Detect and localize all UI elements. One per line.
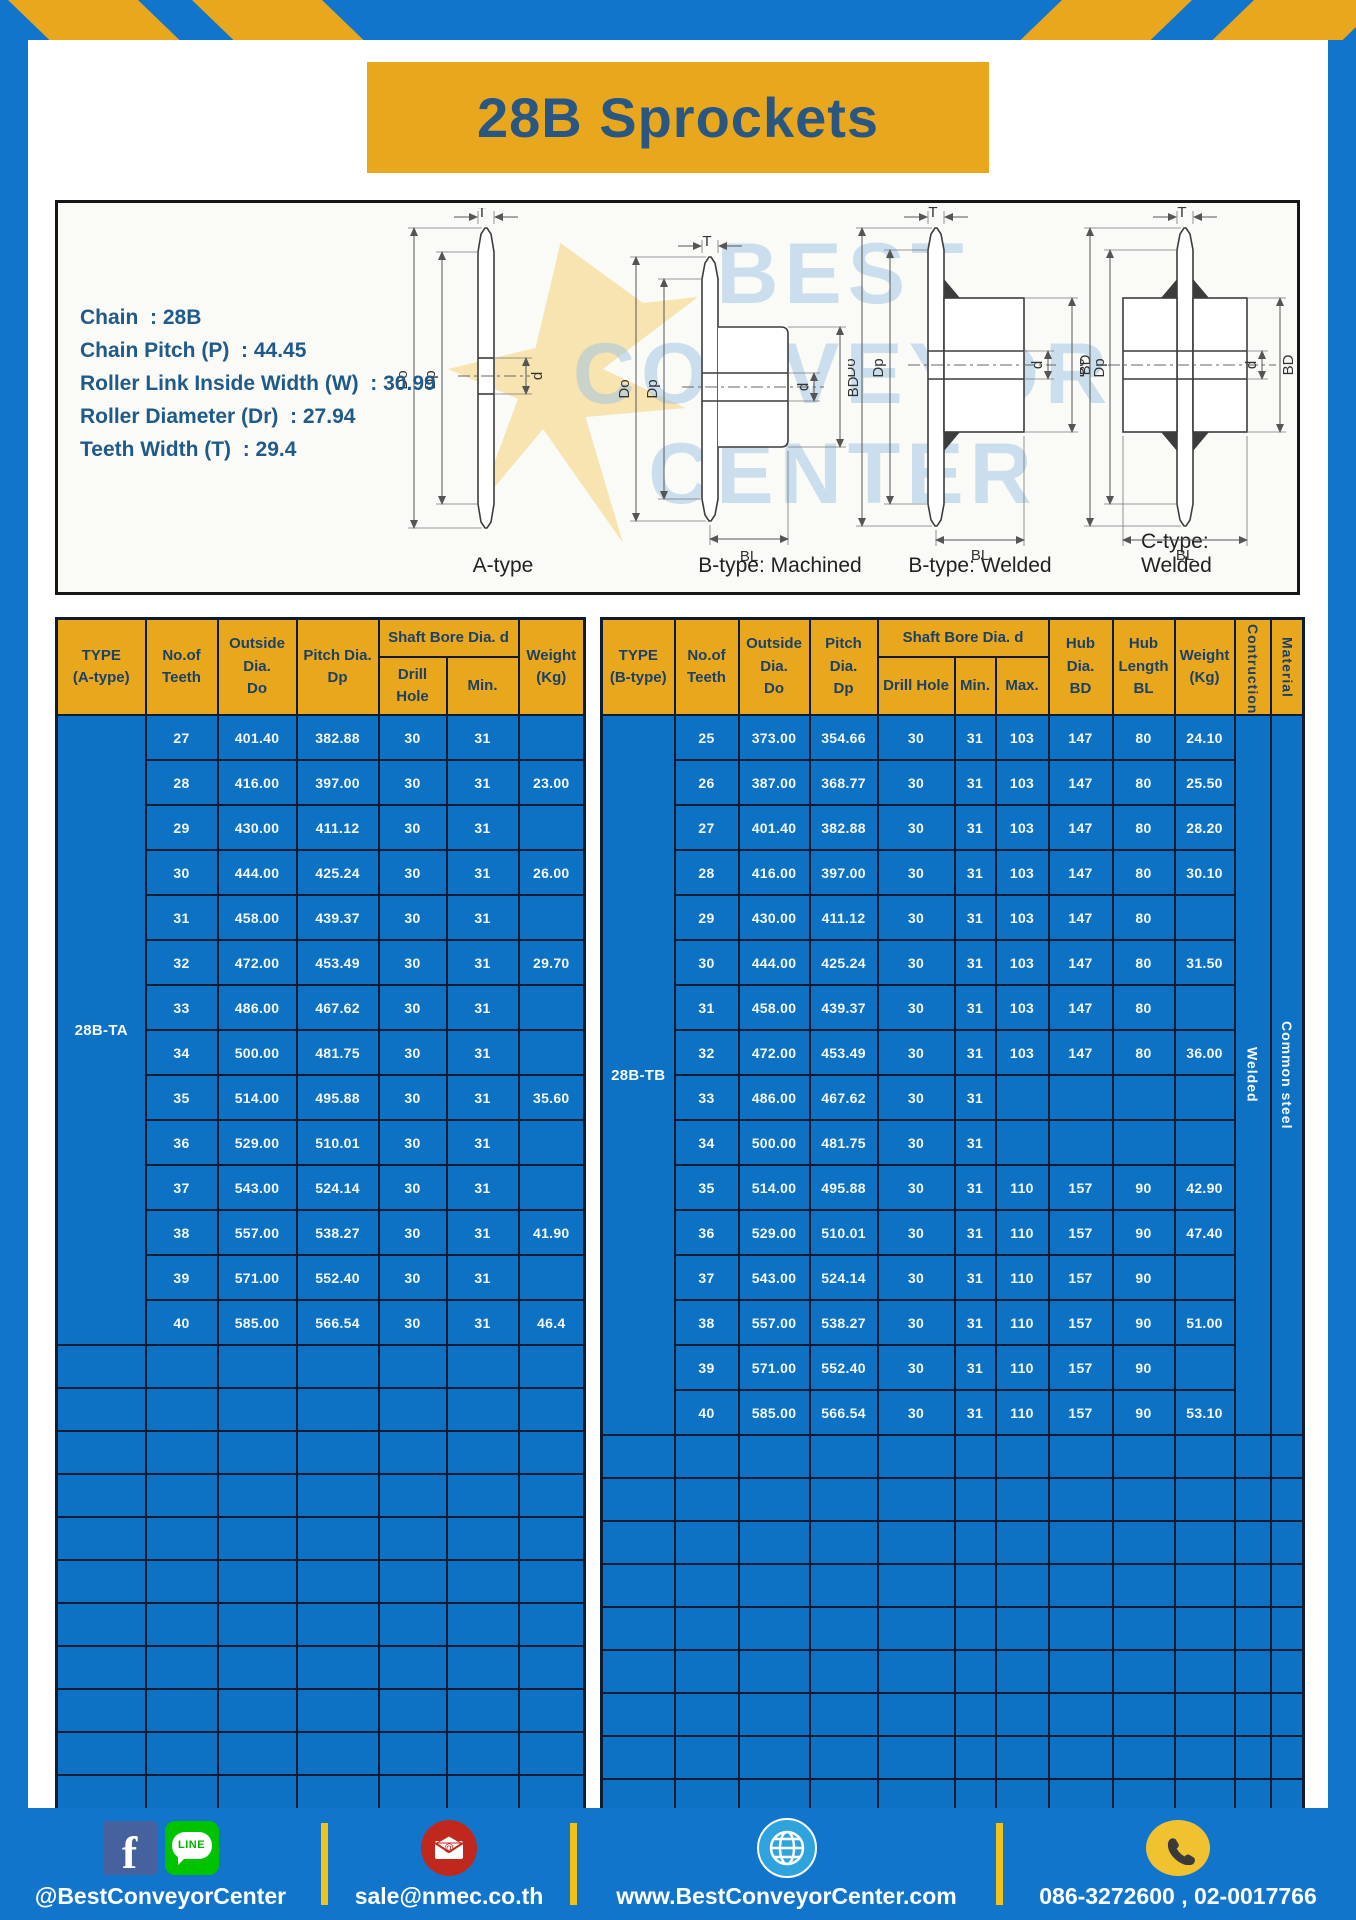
data-cell: 40 (146, 1300, 218, 1345)
col-header-min: Min. (955, 657, 996, 715)
dim-label-d: d (795, 383, 812, 391)
data-cell: 147 (1049, 985, 1113, 1030)
data-cell: 110 (996, 1210, 1049, 1255)
data-cell: 157 (1049, 1165, 1113, 1210)
data-cell (1113, 1120, 1175, 1165)
empty-cell (996, 1736, 1049, 1779)
data-cell: 31 (447, 940, 519, 985)
data-cell: 524.14 (297, 1165, 379, 1210)
table-row: 35514.00495.8830311101579042.90 (602, 1165, 1304, 1210)
data-cell: 28.20 (1175, 805, 1235, 850)
col-header-outside-dia: Outside Dia. Do (218, 619, 297, 716)
phone-icon (1146, 1820, 1210, 1876)
empty-cell (1271, 1564, 1304, 1607)
data-cell: 51.00 (1175, 1300, 1235, 1345)
empty-cell (955, 1736, 996, 1779)
data-cell: 157 (1049, 1255, 1113, 1300)
dim-label-do: Do (848, 358, 859, 377)
empty-cell (878, 1736, 955, 1779)
data-cell: 90 (1113, 1390, 1175, 1435)
data-cell: 411.12 (297, 805, 379, 850)
data-cell: 31 (955, 1390, 996, 1435)
empty-row (602, 1564, 1304, 1607)
hazard-stripe (8, 0, 179, 40)
empty-cell (996, 1521, 1049, 1564)
data-cell: 35 (146, 1075, 218, 1120)
empty-cell (1235, 1736, 1271, 1779)
empty-cell (1049, 1736, 1113, 1779)
empty-cell (1235, 1435, 1271, 1478)
empty-cell (1049, 1693, 1113, 1736)
data-cell: 30 (878, 1165, 955, 1210)
empty-cell (602, 1521, 675, 1564)
empty-cell (519, 1474, 585, 1517)
empty-cell (602, 1650, 675, 1693)
data-cell: 47.40 (1175, 1210, 1235, 1255)
data-cell: 103 (996, 985, 1049, 1030)
data-cell: 500.00 (739, 1120, 810, 1165)
empty-cell (1113, 1521, 1175, 1564)
data-cell: 31 (955, 1165, 996, 1210)
hazard-stripe (1213, 0, 1356, 40)
empty-cell (57, 1560, 146, 1603)
data-cell: 26 (675, 760, 739, 805)
empty-cell (57, 1517, 146, 1560)
table-row: 27401.40382.8830311031478028.20 (602, 805, 1304, 850)
empty-cell (519, 1603, 585, 1646)
data-cell: 32 (675, 1030, 739, 1075)
empty-row (57, 1431, 585, 1474)
footer-contact-bar: f LINE @BestConveyorCenter @ sale (0, 1808, 1356, 1920)
table-header: TYPE (A-type) No.of Teeth Outside Dia. D… (57, 619, 585, 716)
empty-cell (675, 1607, 739, 1650)
table-row: 28416.00397.0030311031478030.10 (602, 850, 1304, 895)
col-header-type: TYPE (B-type) (602, 619, 675, 716)
data-cell: 387.00 (739, 760, 810, 805)
empty-cell (739, 1478, 810, 1521)
data-cell: 28 (146, 760, 218, 805)
data-cell: 514.00 (218, 1075, 297, 1120)
empty-cell (996, 1693, 1049, 1736)
footer-email-section: @ sale@nmec.co.th (328, 1819, 570, 1910)
empty-cell (810, 1478, 878, 1521)
footer-phone-section: 086-3272600 , 02-0017766 (1003, 1819, 1353, 1910)
table-row: 39571.00552.40303111015790 (602, 1345, 1304, 1390)
empty-cell (297, 1388, 379, 1431)
empty-cell (297, 1431, 379, 1474)
empty-cell (878, 1521, 955, 1564)
data-cell: 31 (955, 1210, 996, 1255)
data-cell: 397.00 (297, 760, 379, 805)
empty-cell (57, 1646, 146, 1689)
data-cell: 23.00 (519, 760, 585, 805)
dim-label-dp: Dp (870, 358, 887, 377)
data-cell (519, 805, 585, 850)
data-cell: 37 (146, 1165, 218, 1210)
table-header: TYPE (B-type) No.of Teeth Outside Dia. D… (602, 619, 1304, 716)
col-header-drill-hole: Drill Hole (878, 657, 955, 715)
data-cell: 31 (447, 1210, 519, 1255)
page-title: 28B Sprockets (477, 85, 879, 150)
data-cell: 25.50 (1175, 760, 1235, 805)
line-label: LINE (178, 1839, 205, 1851)
data-cell: 34 (675, 1120, 739, 1165)
table-row: 26387.00368.7730311031478025.50 (602, 760, 1304, 805)
empty-cell (1049, 1650, 1113, 1693)
empty-cell (675, 1435, 739, 1478)
col-header-pitch-dia: Pitch Dia. Dp (297, 619, 379, 716)
col-header-pitch-dia: Pitch Dia. Dp (810, 619, 878, 716)
data-cell: 147 (1049, 895, 1113, 940)
col-header-material: Material (1271, 619, 1304, 716)
data-cell: 36 (146, 1120, 218, 1165)
empty-cell (1175, 1736, 1235, 1779)
empty-cell (379, 1603, 447, 1646)
dim-label-do: Do (1080, 358, 1088, 377)
empty-cell (1175, 1650, 1235, 1693)
empty-cell (218, 1603, 297, 1646)
empty-cell (1175, 1564, 1235, 1607)
data-cell: 31 (955, 1255, 996, 1300)
empty-cell (447, 1431, 519, 1474)
empty-cell (519, 1345, 585, 1388)
data-cell: 529.00 (739, 1210, 810, 1255)
footer-divider (570, 1823, 577, 1905)
empty-cell (146, 1689, 218, 1732)
data-cell: 31 (447, 1165, 519, 1210)
data-cell: 147 (1049, 715, 1113, 760)
empty-cell (447, 1517, 519, 1560)
data-cell: 30 (379, 1210, 447, 1255)
data-cell: 103 (996, 850, 1049, 895)
empty-cell (379, 1474, 447, 1517)
data-cell (996, 1075, 1049, 1120)
empty-cell (955, 1564, 996, 1607)
data-cell: 27 (675, 805, 739, 850)
globe-icon (757, 1818, 817, 1878)
data-cell: 31 (447, 760, 519, 805)
data-cell: 36.00 (1175, 1030, 1235, 1075)
data-cell: 103 (996, 805, 1049, 850)
data-cell: 552.40 (297, 1255, 379, 1300)
social-handle: @BestConveyorCenter (35, 1883, 286, 1910)
empty-cell (1049, 1564, 1113, 1607)
empty-cell (379, 1689, 447, 1732)
a-type-spec-table: TYPE (A-type) No.of Teeth Outside Dia. D… (55, 617, 586, 1820)
data-cell: 80 (1113, 850, 1175, 895)
hazard-stripe (192, 0, 363, 40)
empty-cell (1235, 1650, 1271, 1693)
data-cell: 147 (1049, 760, 1113, 805)
right-table-body: 28B-TB25373.00354.6630311031478024.10Wel… (602, 715, 1304, 1823)
col-header-drill-hole: Drill Hole (379, 657, 447, 715)
data-cell: 37 (675, 1255, 739, 1300)
data-cell: 31 (955, 1300, 996, 1345)
spec-line: Chain : 28B (80, 301, 436, 334)
empty-cell (810, 1650, 878, 1693)
data-cell: 110 (996, 1165, 1049, 1210)
b-type-spec-table: TYPE (B-type) No.of Teeth Outside Dia. D… (600, 617, 1305, 1824)
empty-cell (1271, 1607, 1304, 1650)
empty-cell (996, 1435, 1049, 1478)
empty-cell (146, 1646, 218, 1689)
table-row: 31458.00439.37303110314780 (602, 985, 1304, 1030)
facebook-icon: f (103, 1821, 157, 1875)
data-cell: 425.24 (297, 850, 379, 895)
table-row: 29430.00411.12303110314780 (602, 895, 1304, 940)
empty-cell (297, 1345, 379, 1388)
data-cell: 90 (1113, 1255, 1175, 1300)
data-cell: 110 (996, 1255, 1049, 1300)
data-cell: 472.00 (218, 940, 297, 985)
c-type-welded-diagram: T Do Dp d BD BL (1080, 206, 1295, 563)
data-cell: 31 (447, 1030, 519, 1075)
data-cell: 524.14 (810, 1255, 878, 1300)
data-cell: 147 (1049, 940, 1113, 985)
empty-cell (447, 1560, 519, 1603)
empty-cell (218, 1732, 297, 1775)
spec-line: Roller Diameter (Dr) : 27.94 (80, 400, 436, 433)
data-cell: 30 (878, 1390, 955, 1435)
footer-website-section: www.BestConveyorCenter.com (577, 1819, 996, 1910)
empty-row (602, 1607, 1304, 1650)
empty-cell (878, 1607, 955, 1650)
empty-cell (602, 1607, 675, 1650)
empty-cell (1049, 1478, 1113, 1521)
empty-row (57, 1560, 585, 1603)
empty-row (602, 1650, 1304, 1693)
empty-cell (675, 1521, 739, 1564)
empty-cell (955, 1693, 996, 1736)
data-cell: 29 (146, 805, 218, 850)
hazard-stripe (1021, 0, 1192, 40)
data-cell: 401.40 (739, 805, 810, 850)
data-cell: 26.00 (519, 850, 585, 895)
empty-cell (519, 1517, 585, 1560)
empty-cell (675, 1736, 739, 1779)
data-cell: 31 (447, 1120, 519, 1165)
empty-cell (1175, 1607, 1235, 1650)
col-header-hub-length: Hub Length BL (1113, 619, 1175, 716)
empty-cell (1113, 1736, 1175, 1779)
data-cell: 30 (878, 1345, 955, 1390)
data-cell: 42.90 (1175, 1165, 1235, 1210)
data-cell (1175, 1120, 1235, 1165)
empty-cell (878, 1650, 955, 1693)
data-cell: 425.24 (810, 940, 878, 985)
data-cell: 80 (1113, 895, 1175, 940)
empty-cell (146, 1431, 218, 1474)
empty-row (602, 1435, 1304, 1478)
data-cell: 157 (1049, 1390, 1113, 1435)
data-cell: 510.01 (810, 1210, 878, 1255)
empty-row (57, 1689, 585, 1732)
data-cell: 53.10 (1175, 1390, 1235, 1435)
data-cell: 30 (379, 1255, 447, 1300)
empty-cell (878, 1435, 955, 1478)
construction-cell: Welded (1235, 715, 1271, 1435)
data-cell: 571.00 (218, 1255, 297, 1300)
dim-label-t: T (1177, 206, 1186, 221)
data-cell: 90 (1113, 1300, 1175, 1345)
empty-cell (447, 1603, 519, 1646)
empty-cell (146, 1345, 218, 1388)
data-cell: 32 (146, 940, 218, 985)
empty-row (602, 1693, 1304, 1736)
dim-label-d: d (1029, 361, 1046, 369)
data-cell: 481.75 (297, 1030, 379, 1075)
empty-cell (602, 1435, 675, 1478)
empty-cell (1271, 1736, 1304, 1779)
empty-cell (675, 1564, 739, 1607)
footer-divider (321, 1823, 328, 1905)
data-cell: 472.00 (739, 1030, 810, 1075)
paper-sheet: 28B Sprockets BEST CONVEYOR CENTER Chain… (28, 40, 1328, 1808)
data-cell: 90 (1113, 1345, 1175, 1390)
data-cell: 38 (675, 1300, 739, 1345)
data-cell: 411.12 (810, 895, 878, 940)
data-cell: 495.88 (810, 1165, 878, 1210)
data-cell: 31 (146, 895, 218, 940)
data-cell: 486.00 (218, 985, 297, 1030)
data-cell: 30 (878, 940, 955, 985)
empty-cell (739, 1650, 810, 1693)
data-cell: 486.00 (739, 1075, 810, 1120)
data-cell (1175, 1255, 1235, 1300)
empty-cell (379, 1646, 447, 1689)
data-cell: 30 (379, 1165, 447, 1210)
data-cell: 31 (955, 760, 996, 805)
type-cell: 28B-TA (57, 715, 146, 1345)
left-table-body: 28B-TA27401.40382.88303128416.00397.0030… (57, 715, 585, 1819)
data-cell: 543.00 (218, 1165, 297, 1210)
data-cell: 39 (675, 1345, 739, 1390)
data-cell: 24.10 (1175, 715, 1235, 760)
data-cell: 538.27 (297, 1210, 379, 1255)
catalog-page: 28B Sprockets BEST CONVEYOR CENTER Chain… (0, 0, 1356, 1920)
table-row: 40585.00566.5430311101579053.10 (602, 1390, 1304, 1435)
empty-cell (810, 1435, 878, 1478)
data-cell: 368.77 (810, 760, 878, 805)
table-row: 36529.00510.0130311101579047.40 (602, 1210, 1304, 1255)
empty-cell (996, 1607, 1049, 1650)
empty-cell (57, 1345, 146, 1388)
empty-cell (602, 1564, 675, 1607)
data-cell: 354.66 (810, 715, 878, 760)
data-cell: 41.90 (519, 1210, 585, 1255)
col-header-weight: Weight (Kg) (1175, 619, 1235, 716)
data-cell: 31 (955, 1030, 996, 1075)
data-cell: 157 (1049, 1210, 1113, 1255)
empty-cell (996, 1564, 1049, 1607)
table-row: 28B-TA27401.40382.883031 (57, 715, 585, 760)
empty-cell (955, 1607, 996, 1650)
data-cell: 30 (878, 715, 955, 760)
data-cell: 439.37 (297, 895, 379, 940)
empty-cell (57, 1603, 146, 1646)
data-cell: 31 (447, 985, 519, 1030)
data-cell: 552.40 (810, 1345, 878, 1390)
data-cell: 30 (878, 850, 955, 895)
empty-cell (739, 1693, 810, 1736)
data-cell: 29 (675, 895, 739, 940)
dim-label-dp: Dp (1091, 358, 1108, 377)
empty-row (57, 1603, 585, 1646)
data-cell: 31 (955, 940, 996, 985)
data-cell: 38 (146, 1210, 218, 1255)
spec-line: Chain Pitch (P) : 44.45 (80, 334, 436, 367)
empty-cell (218, 1474, 297, 1517)
data-cell: 33 (675, 1075, 739, 1120)
empty-cell (810, 1736, 878, 1779)
data-cell: 36 (675, 1210, 739, 1255)
dim-label-t: T (928, 206, 937, 221)
data-cell: 110 (996, 1390, 1049, 1435)
material-cell: Common steel (1271, 715, 1304, 1435)
empty-cell (810, 1693, 878, 1736)
data-cell (519, 895, 585, 940)
data-cell: 453.49 (297, 940, 379, 985)
data-cell: 31 (955, 805, 996, 850)
empty-cell (218, 1388, 297, 1431)
data-cell: 103 (996, 1030, 1049, 1075)
empty-cell (218, 1689, 297, 1732)
data-cell: 401.40 (218, 715, 297, 760)
empty-cell (1113, 1564, 1175, 1607)
data-cell: 157 (1049, 1300, 1113, 1345)
col-header-shaft-bore: Shaft Bore Dia. d (878, 619, 1049, 658)
data-cell (996, 1120, 1049, 1165)
data-cell: 444.00 (739, 940, 810, 985)
spec-line: Roller Link Inside Width (W) : 30.99 (80, 367, 436, 400)
dim-label-bd: BD (1280, 354, 1295, 375)
data-cell: 538.27 (810, 1300, 878, 1345)
col-header-max: Max. (996, 657, 1049, 715)
data-cell: 147 (1049, 805, 1113, 850)
empty-cell (955, 1650, 996, 1693)
data-cell (519, 715, 585, 760)
b-type-machined-diagram: T Do Dp d BD BL (618, 231, 868, 566)
data-cell (1175, 895, 1235, 940)
col-header-hub-dia: Hub Dia. BD (1049, 619, 1113, 716)
empty-cell (1175, 1435, 1235, 1478)
table-row: 34500.00481.753031 (602, 1120, 1304, 1165)
empty-cell (739, 1435, 810, 1478)
col-header-shaft-bore: Shaft Bore Dia. d (379, 619, 519, 658)
data-cell: 481.75 (810, 1120, 878, 1165)
data-cell: 31 (447, 715, 519, 760)
data-cell: 557.00 (739, 1300, 810, 1345)
empty-cell (297, 1474, 379, 1517)
data-cell: 543.00 (739, 1255, 810, 1300)
data-cell: 31 (447, 805, 519, 850)
empty-cell (1271, 1478, 1304, 1521)
data-cell: 458.00 (218, 895, 297, 940)
table-row: 33486.00467.623031 (602, 1075, 1304, 1120)
empty-cell (1235, 1521, 1271, 1564)
col-header-teeth: No.of Teeth (146, 619, 218, 716)
data-cell: 80 (1113, 940, 1175, 985)
empty-cell (955, 1435, 996, 1478)
data-cell: 30.10 (1175, 850, 1235, 895)
empty-cell (1235, 1478, 1271, 1521)
empty-cell (519, 1646, 585, 1689)
data-cell: 566.54 (810, 1390, 878, 1435)
empty-cell (878, 1478, 955, 1521)
spec-line: Teeth Width (T) : 29.4 (80, 433, 436, 466)
data-cell: 500.00 (218, 1030, 297, 1075)
empty-cell (602, 1693, 675, 1736)
